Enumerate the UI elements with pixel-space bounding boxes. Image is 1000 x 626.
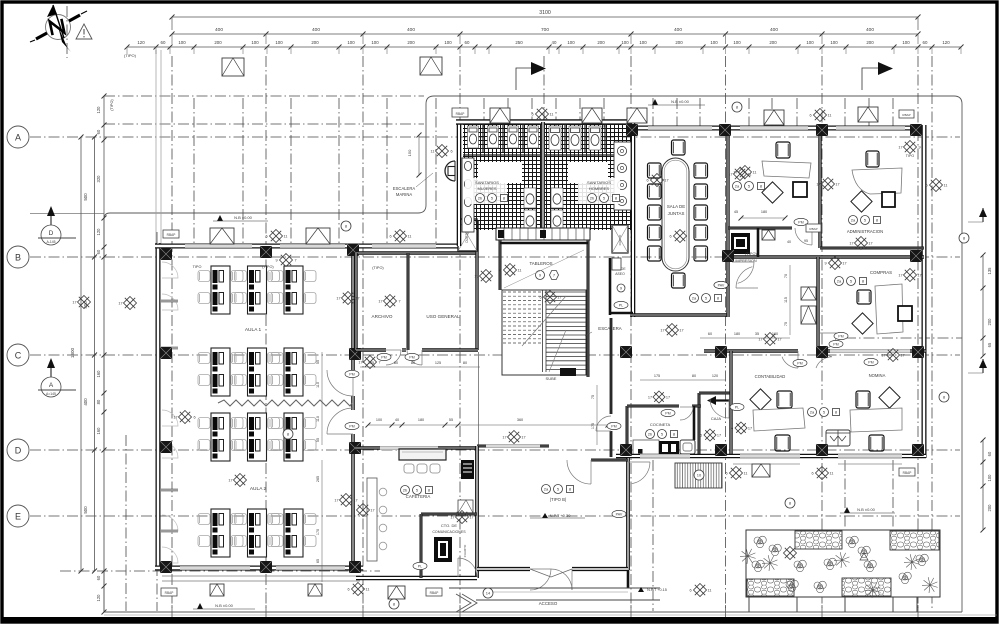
svg-text:10: 10 bbox=[697, 473, 702, 478]
svg-text:55: 55 bbox=[316, 360, 320, 364]
svg-text:400: 400 bbox=[83, 398, 88, 406]
svg-text:COMUNICACIONES: COMUNICACIONES bbox=[432, 530, 466, 534]
svg-text:70: 70 bbox=[784, 274, 788, 278]
svg-text:RBAP: RBAP bbox=[167, 233, 176, 237]
svg-text:PL: PL bbox=[619, 303, 623, 307]
svg-text:17: 17 bbox=[334, 499, 338, 503]
svg-text:A=145: A=145 bbox=[46, 392, 56, 396]
svg-text:60: 60 bbox=[465, 40, 470, 45]
svg-text:100: 100 bbox=[710, 40, 718, 45]
svg-text:6: 6 bbox=[646, 179, 648, 183]
svg-text:14: 14 bbox=[486, 591, 491, 596]
svg-text:2a: 2a bbox=[837, 279, 842, 284]
svg-text:COCINETA: COCINETA bbox=[650, 422, 671, 427]
svg-text:100: 100 bbox=[178, 40, 186, 45]
svg-text:100: 100 bbox=[347, 40, 355, 45]
svg-text:6: 6 bbox=[731, 427, 733, 431]
svg-text:11: 11 bbox=[744, 472, 748, 476]
svg-text:200: 200 bbox=[214, 40, 222, 45]
svg-text:(TIPO): (TIPO) bbox=[262, 265, 274, 269]
svg-text:RBAP: RBAP bbox=[165, 591, 174, 595]
svg-text:40: 40 bbox=[552, 40, 557, 45]
svg-text:COMPRAS: COMPRAS bbox=[870, 270, 892, 275]
svg-text:200: 200 bbox=[987, 504, 992, 512]
svg-text:N.P.T +0.15: N.P.T +0.15 bbox=[647, 588, 667, 592]
svg-text:17: 17 bbox=[557, 296, 561, 300]
svg-text:6: 6 bbox=[450, 150, 452, 154]
svg-text:100: 100 bbox=[902, 40, 910, 45]
svg-text:SALA DE: SALA DE bbox=[667, 204, 685, 209]
svg-text:2b: 2b bbox=[478, 196, 483, 201]
svg-text:17: 17 bbox=[228, 479, 232, 483]
svg-text:180: 180 bbox=[734, 332, 740, 336]
svg-text:(TIPO B): (TIPO B) bbox=[550, 497, 567, 502]
svg-text:7: 7 bbox=[294, 259, 296, 263]
svg-text:115: 115 bbox=[784, 297, 788, 303]
svg-text:17: 17 bbox=[758, 338, 762, 342]
svg-text:RBAP: RBAP bbox=[809, 227, 817, 231]
svg-text:NOMINA: NOMINA bbox=[869, 373, 886, 378]
svg-text:6: 6 bbox=[811, 472, 813, 476]
svg-text:TABLEROS: TABLEROS bbox=[529, 261, 552, 266]
svg-text:100: 100 bbox=[371, 40, 379, 45]
svg-text:9: 9 bbox=[918, 146, 920, 150]
svg-text:PM: PM bbox=[665, 411, 670, 415]
svg-text:17: 17 bbox=[679, 329, 683, 333]
svg-text:11: 11 bbox=[828, 114, 832, 118]
svg-text:100: 100 bbox=[444, 40, 452, 45]
svg-text:17: 17 bbox=[842, 262, 846, 266]
svg-text:95: 95 bbox=[804, 239, 808, 243]
svg-text:7: 7 bbox=[398, 300, 400, 304]
svg-text:170: 170 bbox=[316, 529, 320, 535]
svg-text:6: 6 bbox=[531, 113, 533, 117]
svg-text:11: 11 bbox=[753, 171, 757, 175]
svg-text:N.B ±0.00: N.B ±0.00 bbox=[857, 507, 876, 512]
svg-text:PM: PM bbox=[838, 334, 843, 338]
svg-text:(TIPO): (TIPO) bbox=[372, 266, 384, 270]
svg-text:6: 6 bbox=[925, 184, 927, 188]
svg-text:17: 17 bbox=[378, 300, 382, 304]
svg-text:(TIPO): (TIPO) bbox=[745, 252, 757, 256]
svg-text:17: 17 bbox=[648, 396, 652, 400]
svg-text:200: 200 bbox=[866, 40, 874, 45]
svg-text:11: 11 bbox=[284, 235, 288, 239]
svg-text:17: 17 bbox=[355, 297, 359, 301]
svg-text:(TIPO): (TIPO) bbox=[124, 53, 137, 58]
svg-text:USO GENERAL: USO GENERAL bbox=[426, 314, 460, 319]
svg-text:11: 11 bbox=[944, 184, 948, 188]
svg-text:17: 17 bbox=[666, 396, 670, 400]
svg-text:265: 265 bbox=[316, 476, 320, 482]
svg-text:DUCTO: DUCTO bbox=[465, 231, 469, 243]
svg-text:PM: PM bbox=[381, 355, 386, 359]
svg-text:135: 135 bbox=[987, 267, 992, 275]
svg-text:SANITARIOS: SANITARIOS bbox=[587, 180, 611, 185]
svg-text:120: 120 bbox=[942, 40, 950, 45]
svg-text:17: 17 bbox=[898, 274, 902, 278]
svg-text:TIPO: TIPO bbox=[906, 154, 915, 158]
svg-text:PM: PM bbox=[833, 342, 838, 346]
svg-text:6: 6 bbox=[499, 269, 501, 273]
svg-text:100: 100 bbox=[733, 40, 741, 45]
svg-text:100: 100 bbox=[639, 40, 647, 45]
svg-text:17: 17 bbox=[728, 173, 732, 177]
svg-text:17: 17 bbox=[881, 354, 885, 358]
svg-text:17: 17 bbox=[353, 499, 357, 503]
svg-text:17: 17 bbox=[717, 434, 721, 438]
svg-text:160: 160 bbox=[96, 427, 101, 435]
svg-text:HOMBRES: HOMBRES bbox=[589, 186, 610, 191]
svg-text:17: 17 bbox=[502, 436, 506, 440]
svg-text:120: 120 bbox=[96, 228, 101, 236]
svg-text:110: 110 bbox=[316, 382, 320, 388]
svg-text:200: 200 bbox=[675, 40, 683, 45]
svg-text:400: 400 bbox=[407, 27, 415, 33]
svg-text:175: 175 bbox=[591, 423, 595, 429]
svg-text:60: 60 bbox=[708, 332, 712, 336]
svg-text:175: 175 bbox=[654, 374, 660, 378]
svg-text:6: 6 bbox=[539, 296, 541, 300]
svg-text:17: 17 bbox=[173, 416, 177, 420]
svg-text:55: 55 bbox=[449, 418, 453, 422]
svg-text:100: 100 bbox=[806, 40, 814, 45]
svg-text:35: 35 bbox=[755, 332, 759, 336]
svg-text:TIPO: TIPO bbox=[193, 265, 202, 269]
svg-text:120: 120 bbox=[96, 106, 101, 114]
svg-text:17: 17 bbox=[370, 509, 374, 513]
svg-text:MARINA: MARINA bbox=[396, 192, 412, 197]
svg-text:60: 60 bbox=[96, 575, 101, 580]
svg-text:6: 6 bbox=[700, 434, 702, 438]
svg-text:6: 6 bbox=[347, 588, 349, 592]
svg-text:65: 65 bbox=[316, 559, 320, 563]
svg-text:1800: 1800 bbox=[70, 347, 75, 358]
svg-text:45: 45 bbox=[734, 210, 738, 214]
svg-text:100: 100 bbox=[621, 40, 629, 45]
svg-text:C: C bbox=[15, 351, 22, 361]
svg-text:65: 65 bbox=[987, 342, 992, 347]
svg-text:17: 17 bbox=[664, 179, 668, 183]
svg-text:A: A bbox=[15, 133, 21, 143]
svg-text:PAV: PAV bbox=[616, 512, 623, 516]
svg-text:6: 6 bbox=[193, 416, 195, 420]
svg-text:17: 17 bbox=[849, 242, 853, 246]
svg-text:RBAP: RBAP bbox=[902, 113, 910, 117]
svg-text:17: 17 bbox=[336, 297, 340, 301]
svg-text:40: 40 bbox=[787, 240, 791, 244]
svg-text:200: 200 bbox=[407, 40, 415, 45]
svg-text:2a: 2a bbox=[851, 218, 856, 223]
svg-text:17: 17 bbox=[898, 146, 902, 150]
svg-text:3100: 3100 bbox=[539, 10, 551, 16]
svg-text:N.B ±0.00: N.B ±0.00 bbox=[671, 99, 690, 104]
svg-text:100: 100 bbox=[987, 474, 992, 482]
svg-text:PM: PM bbox=[868, 360, 873, 364]
svg-text:11: 11 bbox=[431, 150, 435, 154]
svg-text:6: 6 bbox=[725, 472, 727, 476]
svg-text:200: 200 bbox=[311, 40, 319, 45]
svg-text:DUCTO: DUCTO bbox=[618, 234, 622, 245]
svg-text:E: E bbox=[15, 512, 21, 522]
svg-text:17: 17 bbox=[118, 302, 122, 306]
svg-text:2b: 2b bbox=[403, 488, 408, 493]
svg-text:11: 11 bbox=[366, 588, 370, 592]
svg-text:80: 80 bbox=[692, 374, 696, 378]
svg-text:ESCALERA: ESCALERA bbox=[393, 186, 416, 191]
svg-text:6: 6 bbox=[265, 235, 267, 239]
svg-text:150: 150 bbox=[407, 149, 412, 156]
svg-text:17: 17 bbox=[469, 516, 473, 520]
svg-text:2b: 2b bbox=[648, 432, 653, 437]
svg-text:80: 80 bbox=[394, 361, 398, 365]
svg-text:2a: 2a bbox=[692, 296, 697, 301]
svg-text:75: 75 bbox=[591, 395, 595, 399]
svg-text:400: 400 bbox=[770, 27, 778, 33]
svg-text:80: 80 bbox=[463, 361, 467, 365]
svg-text:17: 17 bbox=[816, 183, 820, 187]
svg-text:400: 400 bbox=[674, 27, 682, 33]
svg-text:PM: PM bbox=[797, 361, 802, 365]
svg-text:17: 17 bbox=[777, 338, 781, 342]
svg-text:6: 6 bbox=[809, 114, 811, 118]
svg-text:60: 60 bbox=[161, 40, 166, 45]
svg-text:SANITARIOS: SANITARIOS bbox=[475, 180, 499, 185]
svg-text:400: 400 bbox=[866, 27, 874, 33]
svg-text:500: 500 bbox=[83, 193, 88, 201]
svg-text:60: 60 bbox=[96, 129, 101, 134]
svg-text:250: 250 bbox=[515, 40, 523, 45]
svg-text:80: 80 bbox=[96, 399, 101, 404]
svg-text:200: 200 bbox=[987, 318, 992, 326]
svg-text:11: 11 bbox=[748, 173, 752, 177]
svg-text:100: 100 bbox=[830, 40, 838, 45]
svg-text:700: 700 bbox=[541, 27, 549, 33]
svg-text:PM: PM bbox=[349, 372, 354, 376]
svg-text:PL: PL bbox=[418, 564, 422, 568]
svg-text:RBAP: RBAP bbox=[456, 112, 465, 116]
svg-text:11: 11 bbox=[550, 113, 554, 117]
svg-text:17: 17 bbox=[450, 516, 454, 520]
svg-text:D: D bbox=[49, 230, 54, 237]
svg-text:AULA 1: AULA 1 bbox=[245, 327, 262, 333]
svg-text:JUNTAS: JUNTAS bbox=[668, 211, 685, 216]
svg-text:360: 360 bbox=[517, 418, 523, 422]
svg-text:120: 120 bbox=[712, 374, 718, 378]
svg-text:17: 17 bbox=[748, 427, 752, 431]
svg-text:100: 100 bbox=[251, 40, 259, 45]
svg-text:200: 200 bbox=[769, 40, 777, 45]
svg-text:180: 180 bbox=[761, 210, 767, 214]
svg-text:D: D bbox=[15, 446, 22, 456]
svg-text:CONTABILIDAD: CONTABILIDAD bbox=[755, 374, 786, 379]
svg-text:RBAP: RBAP bbox=[903, 471, 912, 475]
svg-text:2a: 2a bbox=[544, 487, 549, 492]
svg-text:11: 11 bbox=[708, 589, 712, 593]
svg-text:9: 9 bbox=[824, 262, 826, 266]
svg-text:AULA 2: AULA 2 bbox=[250, 486, 267, 492]
svg-text:N.B ±0.00: N.B ±0.00 bbox=[234, 215, 253, 220]
svg-text:B: B bbox=[15, 253, 21, 263]
svg-text:160: 160 bbox=[96, 370, 101, 378]
svg-text:CTO. DE: CTO. DE bbox=[441, 523, 457, 528]
svg-text:9: 9 bbox=[275, 259, 277, 263]
svg-text:N.P.T +0.30: N.P.T +0.30 bbox=[550, 513, 572, 518]
svg-text:17: 17 bbox=[835, 183, 839, 187]
svg-text:6: 6 bbox=[669, 235, 671, 239]
svg-text:60: 60 bbox=[923, 40, 928, 45]
svg-text:120: 120 bbox=[96, 594, 101, 602]
svg-text:11: 11 bbox=[518, 269, 522, 273]
svg-text:A-145: A-145 bbox=[46, 240, 55, 244]
svg-text:6: 6 bbox=[689, 589, 691, 593]
svg-text:400: 400 bbox=[312, 27, 320, 33]
svg-text:A: A bbox=[49, 382, 54, 389]
svg-text:PM: PM bbox=[798, 220, 803, 224]
svg-text:110: 110 bbox=[316, 416, 320, 422]
svg-text:60: 60 bbox=[96, 249, 101, 254]
svg-text:17: 17 bbox=[868, 242, 872, 246]
svg-text:MUJERES: MUJERES bbox=[477, 186, 496, 191]
svg-text:80: 80 bbox=[411, 361, 415, 365]
svg-text:PM: PM bbox=[409, 355, 414, 359]
svg-text:CAJA: CAJA bbox=[711, 416, 722, 421]
svg-text:100: 100 bbox=[275, 40, 283, 45]
svg-text:17: 17 bbox=[474, 275, 478, 279]
svg-text:500: 500 bbox=[83, 506, 88, 514]
svg-text:PM: PM bbox=[611, 424, 616, 428]
svg-text:(TIPO): (TIPO) bbox=[110, 99, 114, 111]
svg-text:17: 17 bbox=[521, 436, 525, 440]
svg-text:100: 100 bbox=[567, 40, 575, 45]
svg-text:ACCESO: ACCESO bbox=[539, 601, 558, 606]
svg-text:60: 60 bbox=[987, 451, 992, 456]
svg-text:2b: 2b bbox=[590, 196, 595, 201]
svg-text:7: 7 bbox=[378, 361, 380, 365]
svg-text:2a: 2a bbox=[810, 410, 815, 415]
svg-text:120: 120 bbox=[137, 40, 145, 45]
svg-text:17: 17 bbox=[358, 361, 362, 365]
svg-text:200: 200 bbox=[597, 40, 605, 45]
svg-text:PM: PM bbox=[349, 424, 354, 428]
svg-text:400: 400 bbox=[215, 27, 223, 33]
svg-text:ADMINISTRACION: ADMINISTRACION bbox=[847, 229, 883, 234]
svg-text:PAV: PAV bbox=[718, 283, 725, 287]
svg-text:11: 11 bbox=[408, 235, 412, 239]
svg-text:320: 320 bbox=[96, 175, 101, 183]
svg-text:17: 17 bbox=[900, 354, 904, 358]
svg-text:N.B ±0.00: N.B ±0.00 bbox=[215, 603, 234, 608]
svg-text:PL: PL bbox=[735, 405, 739, 409]
svg-text:125: 125 bbox=[435, 361, 441, 365]
svg-text:55: 55 bbox=[316, 438, 320, 442]
svg-text:17: 17 bbox=[917, 274, 921, 278]
svg-text:RBAP: RBAP bbox=[430, 591, 439, 595]
svg-text:2a: 2a bbox=[735, 184, 740, 189]
svg-text:ARCHIVO: ARCHIVO bbox=[372, 314, 393, 319]
svg-text:6: 6 bbox=[389, 235, 391, 239]
svg-text:40: 40 bbox=[395, 418, 399, 422]
svg-text:17: 17 bbox=[660, 329, 664, 333]
svg-text:ASEO: ASEO bbox=[615, 272, 625, 276]
svg-text:180: 180 bbox=[418, 418, 424, 422]
svg-text:17: 17 bbox=[72, 301, 76, 305]
svg-text:SUBE: SUBE bbox=[546, 376, 557, 381]
svg-text:75: 75 bbox=[784, 322, 788, 326]
svg-text:CUARTO: CUARTO bbox=[463, 544, 467, 557]
svg-text:11: 11 bbox=[830, 472, 834, 476]
svg-text:100: 100 bbox=[376, 418, 382, 422]
